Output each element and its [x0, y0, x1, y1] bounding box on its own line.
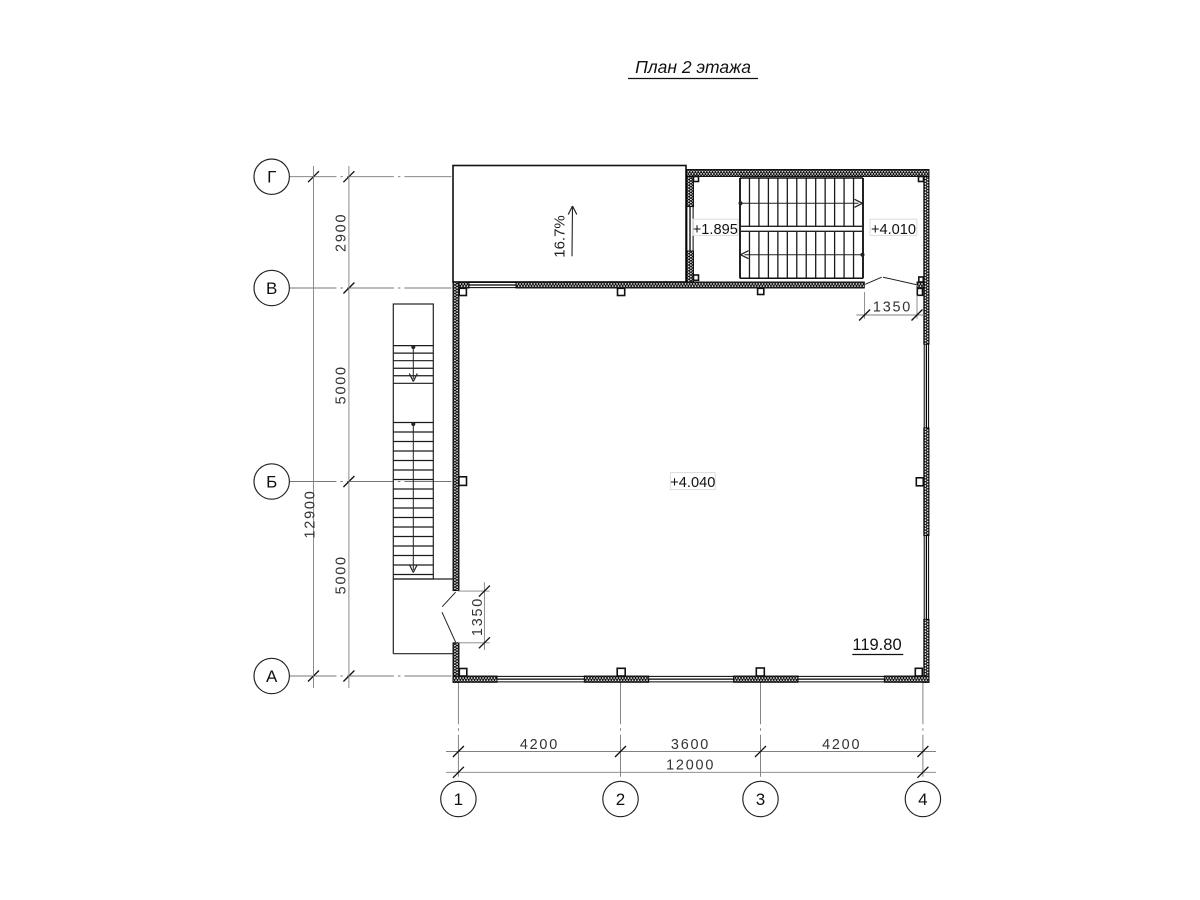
svg-text:3600: 3600	[671, 737, 710, 753]
svg-text:119.80: 119.80	[852, 636, 901, 654]
svg-text:16.7%: 16.7%	[552, 215, 569, 258]
svg-text:В: В	[266, 279, 277, 298]
svg-text:Г: Г	[267, 168, 276, 187]
svg-text:+4.040: +4.040	[670, 475, 715, 491]
svg-text:12000: 12000	[666, 757, 715, 773]
svg-text:12900: 12900	[303, 489, 319, 538]
svg-text:4200: 4200	[520, 737, 559, 753]
svg-text:2: 2	[616, 790, 625, 809]
svg-text:+4.010: +4.010	[871, 222, 916, 238]
svg-text:2900: 2900	[334, 213, 350, 252]
svg-text:4: 4	[918, 790, 927, 809]
svg-text:План 2 этажа: План 2 этажа	[635, 57, 751, 77]
svg-text:А: А	[266, 667, 278, 686]
svg-text:5000: 5000	[334, 365, 350, 404]
svg-text:1: 1	[454, 790, 463, 809]
svg-text:3: 3	[756, 790, 765, 809]
svg-text:1350: 1350	[470, 597, 486, 636]
svg-text:1350: 1350	[873, 300, 912, 316]
svg-text:4200: 4200	[822, 737, 861, 753]
svg-text:Б: Б	[266, 473, 277, 492]
svg-text:5000: 5000	[334, 555, 350, 594]
